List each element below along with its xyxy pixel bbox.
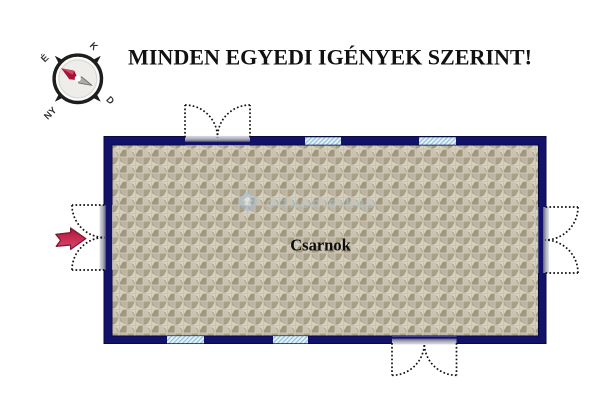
svg-text:Csarnok: Csarnok: [290, 236, 351, 255]
svg-text:MINDEN EGYEDI IGÉNYEK SZERINT!: MINDEN EGYEDI IGÉNYEK SZERINT!: [128, 45, 532, 70]
svg-text:otthonterkep: otthonterkep: [266, 195, 376, 212]
